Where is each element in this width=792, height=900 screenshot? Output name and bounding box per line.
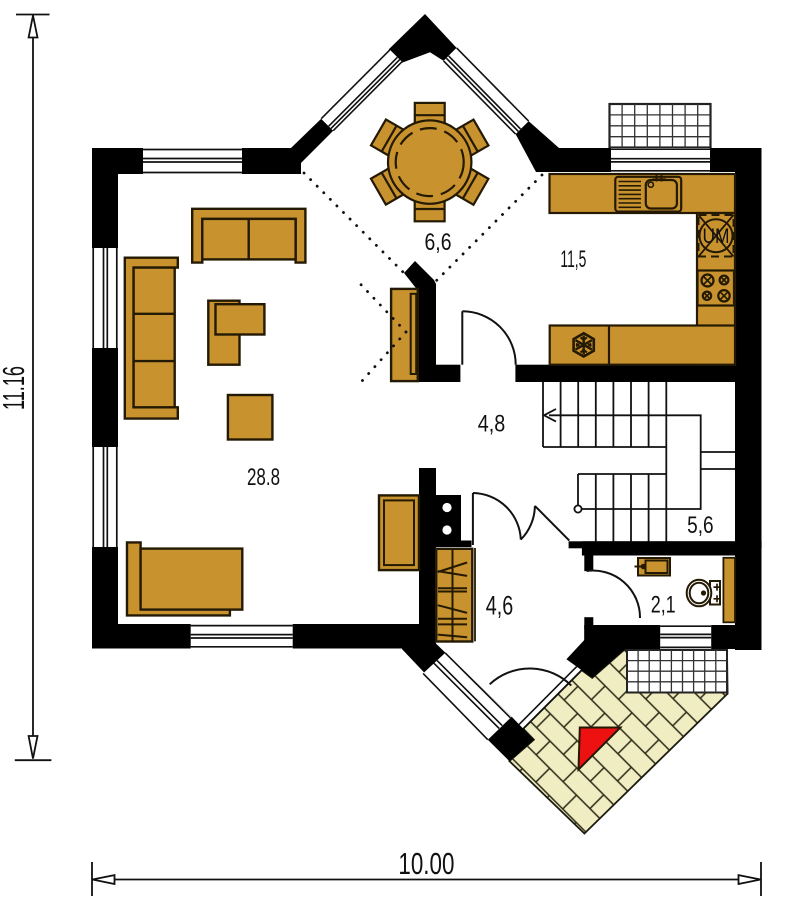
svg-text:2,1: 2,1 — [651, 592, 676, 619]
svg-text:28.8: 28.8 — [247, 464, 280, 491]
svg-text:11,5: 11,5 — [560, 246, 586, 273]
svg-text:UM: UM — [703, 225, 730, 248]
svg-text:5,6: 5,6 — [687, 512, 714, 539]
svg-text:4,8: 4,8 — [478, 410, 506, 437]
svg-text:11.16: 11.16 — [0, 366, 31, 410]
svg-text:6,6: 6,6 — [425, 229, 452, 256]
svg-text:4,6: 4,6 — [486, 591, 514, 621]
svg-text:10.00: 10.00 — [398, 846, 454, 881]
